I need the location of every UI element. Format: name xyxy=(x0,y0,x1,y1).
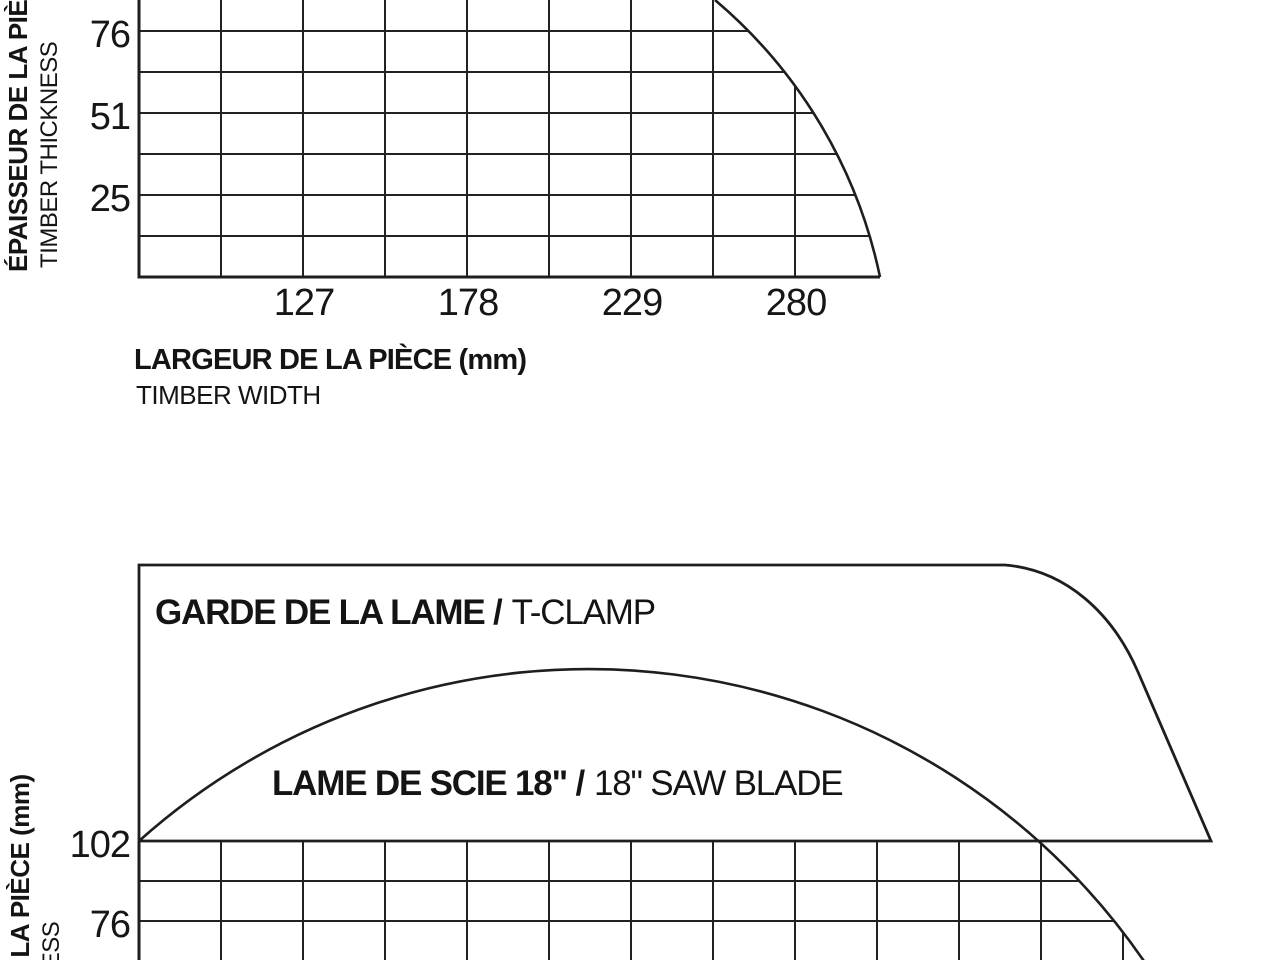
guard-label-fr: GARDE DE LA LAME / xyxy=(155,593,502,632)
bottom-gridlines xyxy=(139,841,1205,960)
guard-label: GARDE DE LA LAME /T-CLAMP xyxy=(155,593,655,633)
saw-blade-arc xyxy=(139,669,1150,960)
blade-label-fr: LAME DE SCIE 18" / xyxy=(272,764,584,803)
top-xtick-280: 280 xyxy=(721,284,871,322)
guard-label-en: T-CLAMP xyxy=(512,593,655,632)
top-x-axis-title-fr: LARGEUR DE LA PIÈCE (mm) xyxy=(134,344,526,377)
top-xtick-127: 127 xyxy=(229,284,379,322)
bottom-y-axis-title-fr: ÉPAISSEUR DE LA PIÈCE (mm) xyxy=(6,774,34,960)
top-y-axis-title-fr: ÉPAISSEUR DE LA PIÈCE (mm) xyxy=(4,0,32,272)
top-gridlines xyxy=(139,0,895,277)
bottom-y-axis-title-en: TIMBER THICKNESS xyxy=(39,922,65,960)
top-xtick-229: 229 xyxy=(557,284,707,322)
capacity-diagram-page: 76 51 25 127 178 229 280 ÉPAISSEUR DE LA… xyxy=(0,0,1280,960)
blade-label: LAME DE SCIE 18" /18" SAW BLADE xyxy=(272,764,842,804)
top-y-axis-title-en: TIMBER THICKNESS xyxy=(37,42,63,268)
top-x-axis-title-en: TIMBER WIDTH xyxy=(136,380,321,411)
blade-label-en: 18" SAW BLADE xyxy=(594,764,842,803)
top-xtick-178: 178 xyxy=(393,284,543,322)
